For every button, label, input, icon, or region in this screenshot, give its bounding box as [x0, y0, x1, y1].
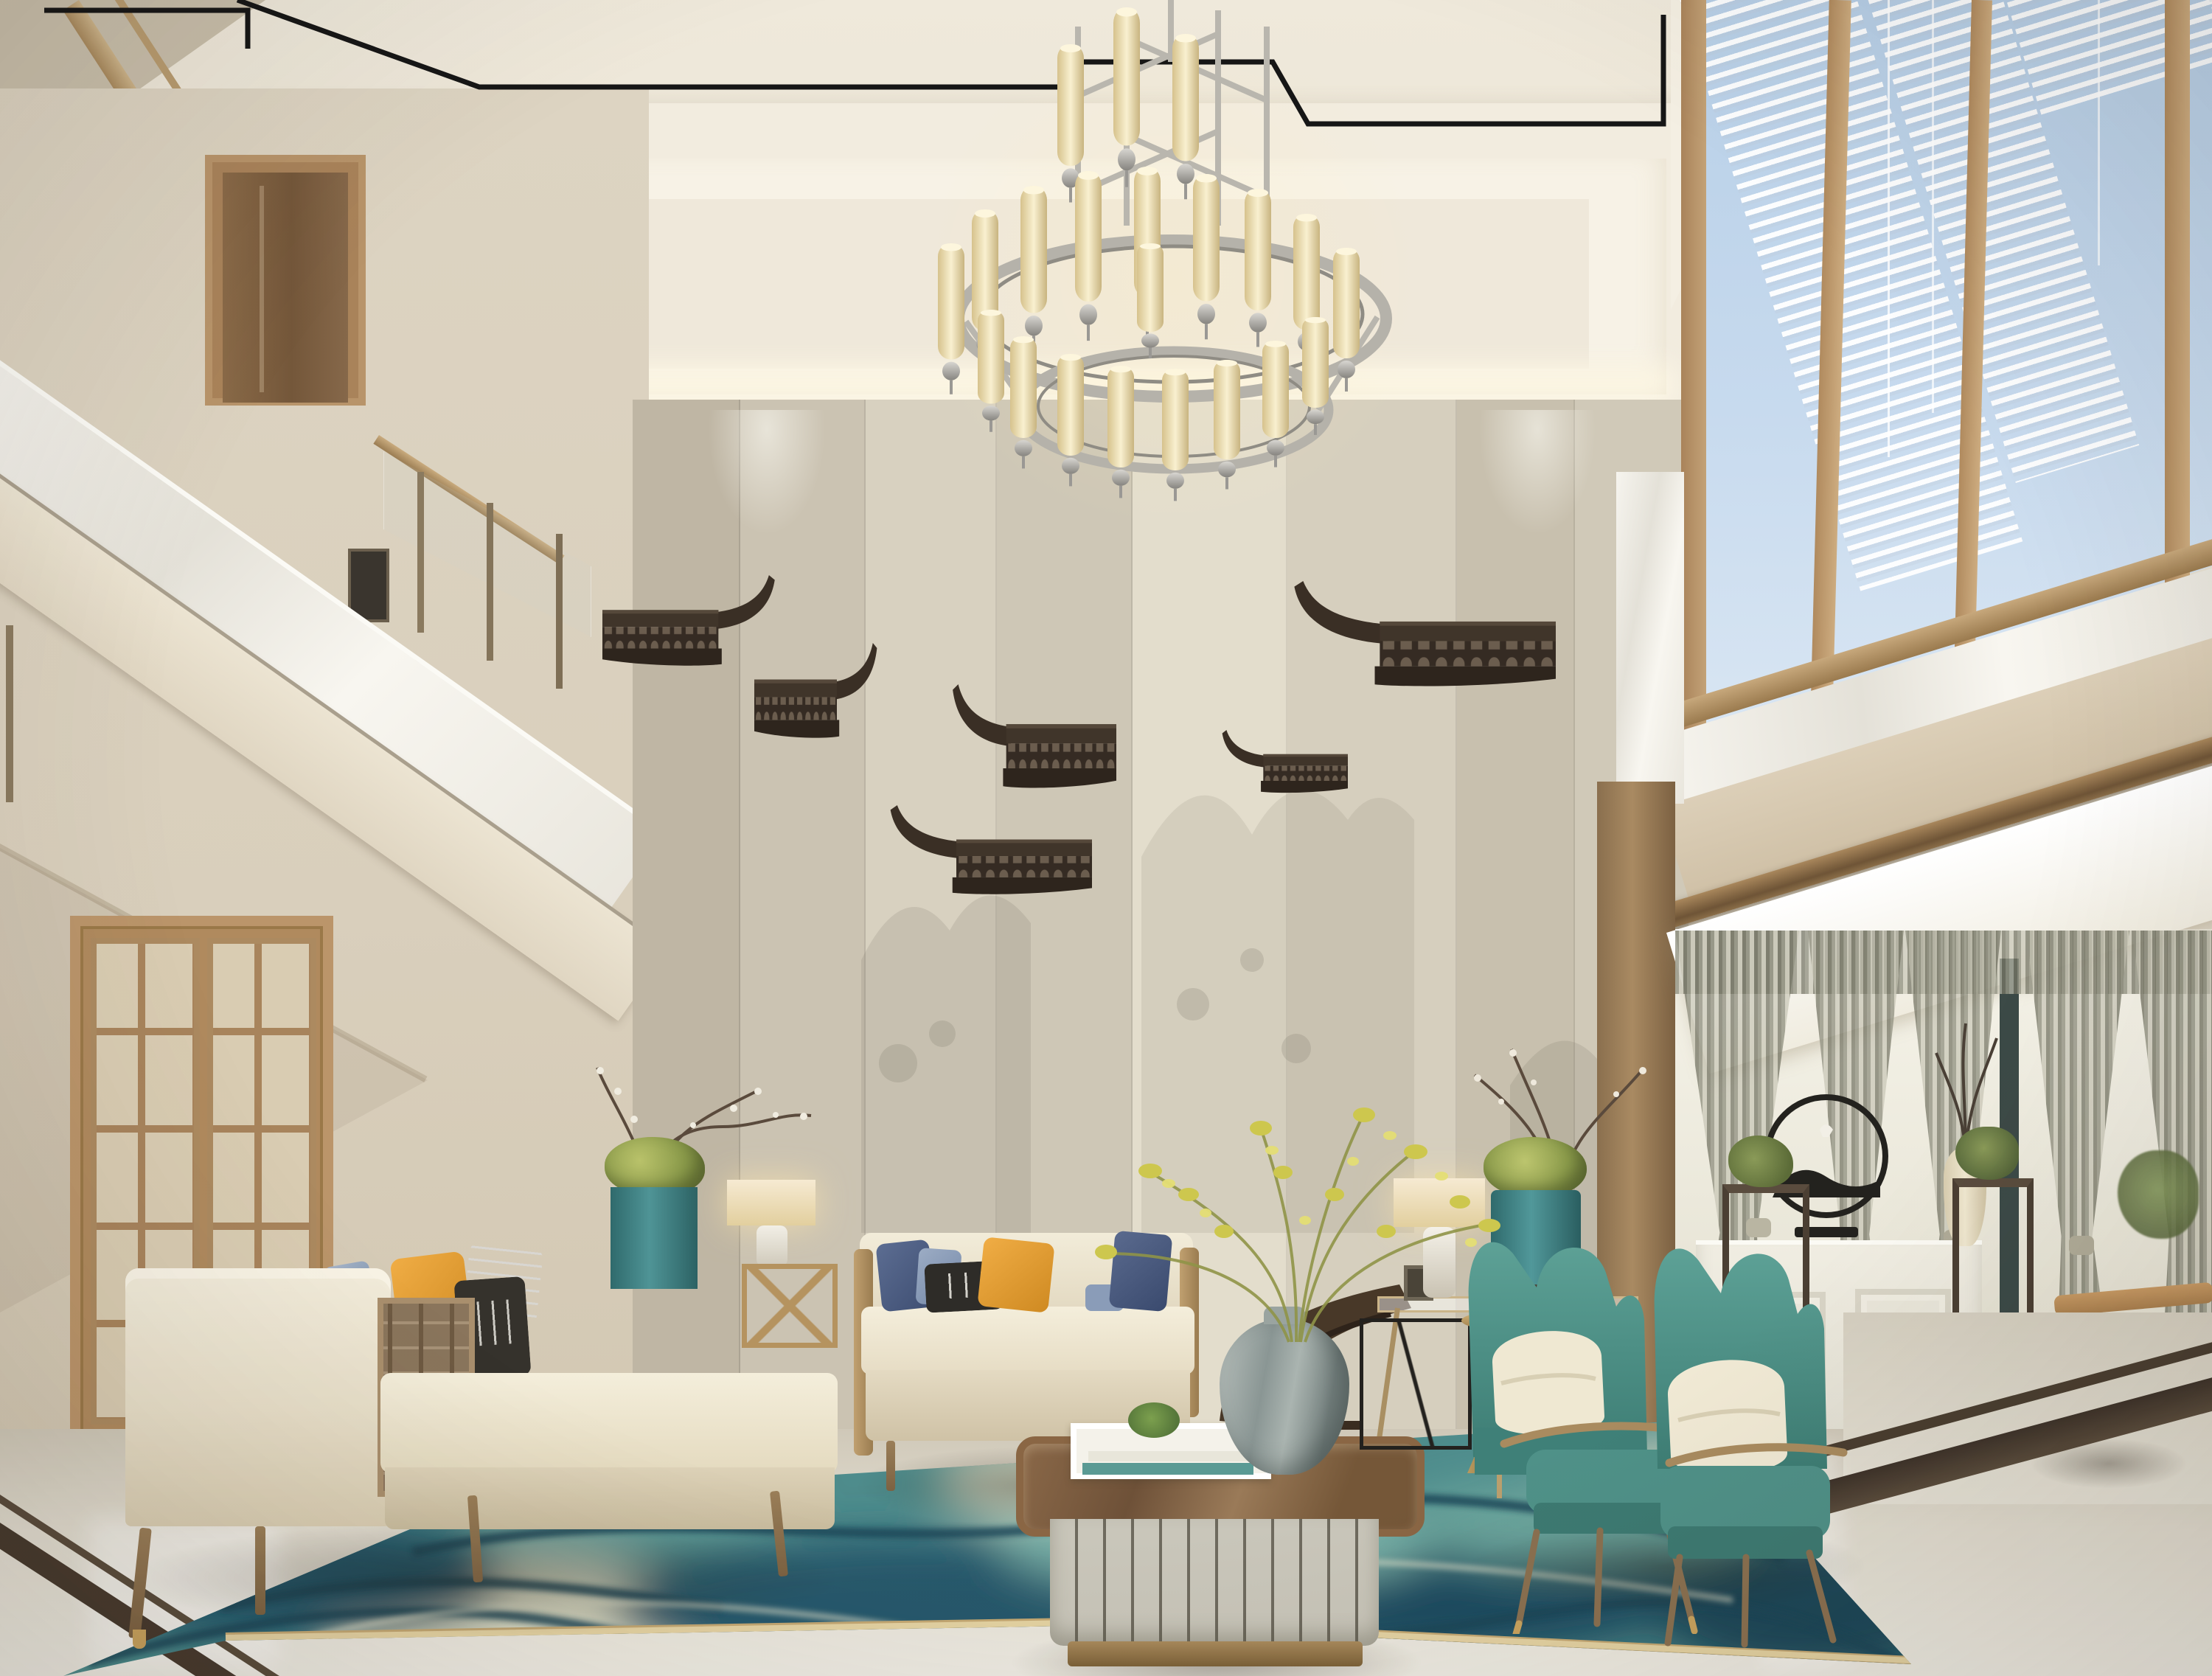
living-room-scene — [0, 0, 2212, 1676]
railing-post-edge — [6, 625, 13, 802]
bonsai-far-right — [2118, 1150, 2199, 1239]
eave-bracket-3 — [951, 684, 1116, 789]
center-sofa-leg-1 — [886, 1441, 895, 1491]
eave-bracket-2 — [754, 643, 878, 739]
left-sofa-leg-2 — [255, 1526, 265, 1615]
left-sofa-skirt — [385, 1467, 835, 1529]
curtain-tie-3 — [2069, 1236, 2094, 1255]
leg-tip-gold-1 — [133, 1630, 146, 1649]
eave-bracket-6 — [1221, 730, 1348, 793]
left-sofa-seat — [380, 1373, 838, 1473]
left-sofa — [111, 1246, 848, 1600]
eave-bracket-4 — [888, 805, 1092, 895]
armchair-2 — [1635, 1209, 1857, 1652]
book-teal — [1082, 1463, 1253, 1475]
table-lamp-left-shade — [727, 1180, 815, 1225]
bonsai-right — [1955, 1127, 2019, 1180]
eave-bracket-5 — [1292, 581, 1556, 687]
coffee-table-base — [1050, 1519, 1379, 1646]
book-white — [1088, 1451, 1248, 1461]
tray-plant — [1128, 1402, 1180, 1438]
left-sofa-arm — [125, 1268, 391, 1526]
chandelier — [848, 0, 1497, 590]
stool-shadow — [2028, 1438, 2190, 1489]
coffee-table-plinth — [1068, 1641, 1363, 1666]
